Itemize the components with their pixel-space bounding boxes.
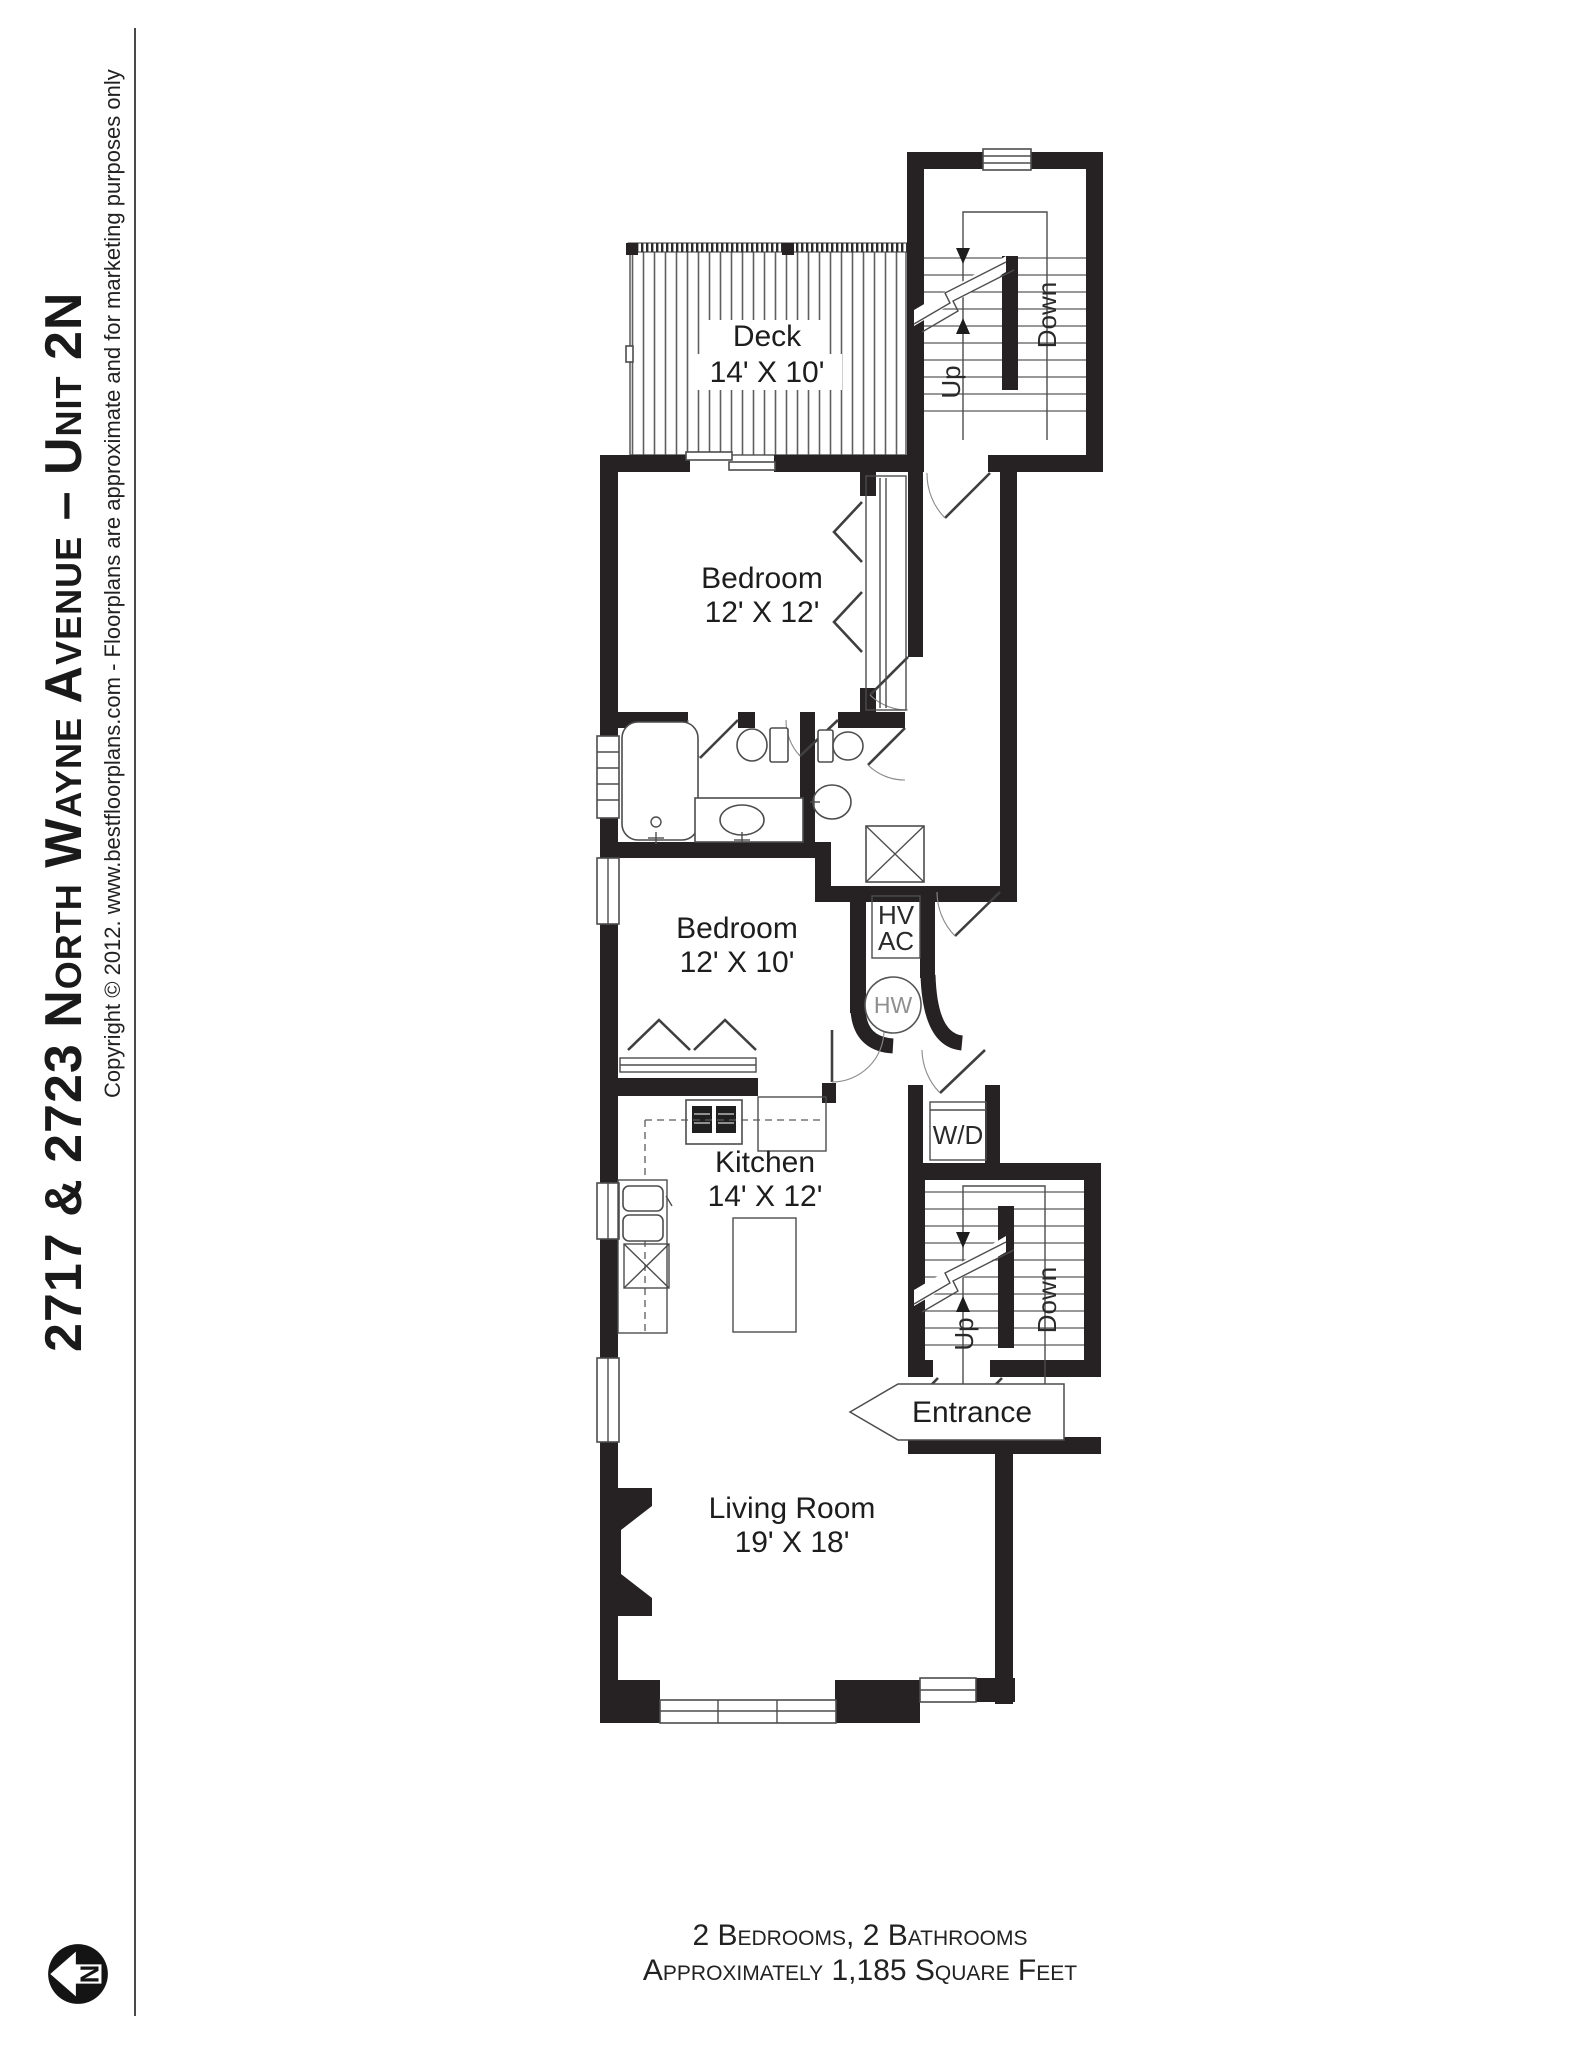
bedroom1-label: Bedroom <box>701 562 823 595</box>
living-room-window-right <box>920 1678 976 1702</box>
bedroom2-closet <box>620 1020 756 1072</box>
upper-stairs-up-label: Up <box>936 365 966 398</box>
living-room-triple-window <box>660 1700 836 1723</box>
bedroom2-label: Bedroom <box>676 912 798 945</box>
range <box>686 1100 742 1144</box>
bedroom2: Bedroom 12' X 10' <box>620 912 798 1072</box>
stairwell-window <box>983 149 1031 170</box>
shower <box>866 826 924 882</box>
kitchen-label: Kitchen <box>715 1146 815 1179</box>
living-room-window-left <box>597 1358 619 1442</box>
bifold-door <box>834 592 862 652</box>
floorplan-drawing: Deck 14' X 10' <box>0 0 1583 2048</box>
lower-stairs-up-label: Up <box>949 1317 979 1350</box>
summary-bed-bath: 2 Bedrooms, 2 Bathrooms <box>420 1918 1300 1953</box>
vanity-sink <box>695 798 803 842</box>
deck: Deck 14' X 10' <box>626 243 907 455</box>
bathtub <box>622 722 698 840</box>
deck-label: Deck <box>733 320 802 353</box>
entrance: Entrance <box>850 1384 1064 1440</box>
bathroom1 <box>622 722 803 844</box>
bedroom2-dims: 12' X 10' <box>680 946 795 979</box>
kitchen-island <box>733 1218 796 1332</box>
upper-stairs-down-label: Down <box>1032 282 1062 348</box>
kitchen-window <box>597 1183 619 1239</box>
water-heater: HW <box>865 977 921 1033</box>
living-room-label: Living Room <box>709 1492 876 1525</box>
washer-dryer: W/D <box>930 1102 986 1160</box>
washer-dryer-label: W/D <box>933 1120 984 1150</box>
bedroom1: Bedroom 12' X 12' <box>701 476 906 710</box>
upper-stair-door <box>927 473 990 518</box>
deck-dims: 14' X 10' <box>710 356 825 389</box>
summary-square-feet: Approximately 1,185 Square Feet <box>420 1953 1300 1988</box>
toilet <box>818 730 863 762</box>
bedroom1-dims: 12' X 12' <box>705 596 820 629</box>
dishwasher <box>624 1244 669 1288</box>
living-room: Living Room 19' X 18' <box>600 1488 875 1616</box>
bathroom2-door <box>868 728 905 780</box>
stair-stringer <box>998 1206 1014 1348</box>
bathroom-window <box>597 736 619 818</box>
living-room-dims: 19' X 18' <box>735 1526 850 1559</box>
bifold-door <box>694 1020 756 1050</box>
stair-stringer <box>1002 256 1018 390</box>
floorplan-page: 2717 & 2723 North Wayne Avenue – Unit 2N… <box>0 0 1583 2048</box>
fireplace <box>600 1488 652 1616</box>
kitchen: Kitchen 14' X 12' <box>618 1097 826 1333</box>
bifold-door <box>834 502 862 562</box>
upper-staircase: Up Down <box>914 212 1086 440</box>
lower-stairs-down-label: Down <box>1032 1267 1062 1333</box>
hvac-unit: HV AC <box>872 896 920 958</box>
pedestal-sink <box>810 785 851 819</box>
refrigerator <box>758 1097 826 1151</box>
entrance-label: Entrance <box>912 1396 1032 1429</box>
bedroom1-closet <box>834 476 906 710</box>
bifold-door <box>628 1020 690 1050</box>
washer-dryer-door <box>922 1050 985 1093</box>
kitchen-sink <box>623 1186 672 1241</box>
bedroom2-window <box>597 858 619 924</box>
hvac-label-line2: AC <box>878 926 914 956</box>
toilet <box>737 728 788 762</box>
water-heater-label: HW <box>874 992 913 1018</box>
kitchen-dims: 14' X 12' <box>708 1180 823 1213</box>
summary-caption: 2 Bedrooms, 2 Bathrooms Approximately 1,… <box>420 1918 1300 1988</box>
